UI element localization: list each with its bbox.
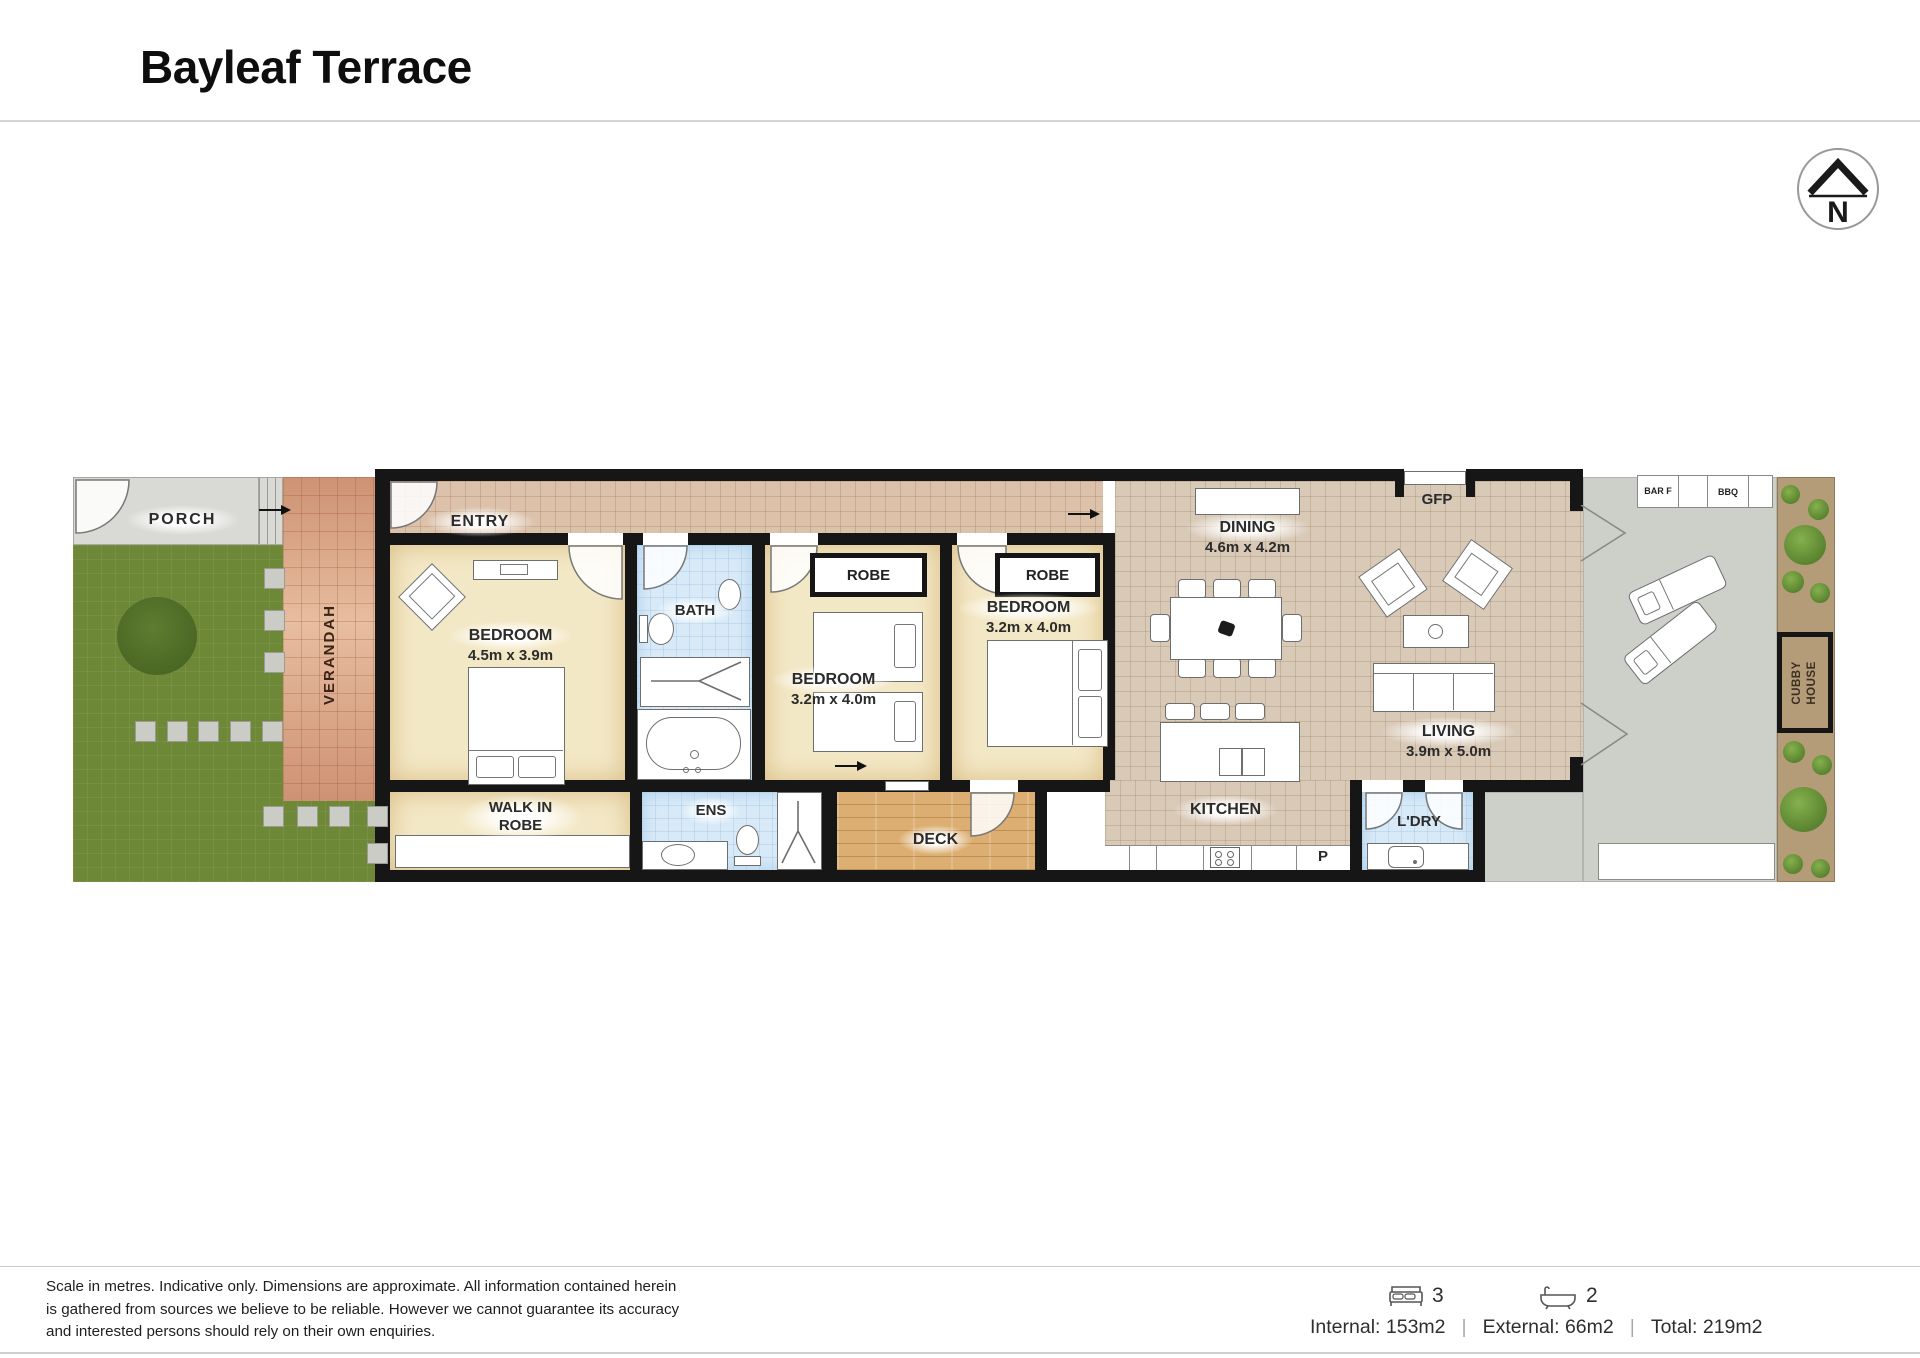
bedroom-2-dims: 3.2m x 4.0m bbox=[771, 691, 896, 709]
verandah-label-wrap: VERANDAH bbox=[305, 569, 353, 739]
bush-icon bbox=[1783, 854, 1803, 874]
bath-label: BATH bbox=[655, 597, 735, 625]
dining-dims: 4.6m x 4.2m bbox=[1185, 539, 1310, 557]
bar-stool-icon bbox=[1235, 703, 1265, 720]
bifold-door-icon bbox=[1577, 505, 1633, 767]
outdoor-bench: BAR F BBQ bbox=[1637, 475, 1773, 508]
shower-icon bbox=[640, 657, 750, 707]
stepping-stone bbox=[198, 721, 219, 742]
tree-icon bbox=[117, 597, 197, 675]
deck-label: DECK bbox=[898, 825, 973, 855]
toilet-icon bbox=[639, 615, 648, 643]
wall bbox=[375, 469, 1395, 481]
compass-north-label: N bbox=[1827, 196, 1849, 229]
buffet-icon bbox=[1195, 488, 1300, 515]
stepping-stone bbox=[263, 806, 284, 827]
robe-2: ROBE bbox=[810, 553, 927, 597]
bed-icon bbox=[1388, 1284, 1424, 1308]
dining-table-icon bbox=[1170, 597, 1282, 660]
stepping-stone bbox=[367, 843, 388, 864]
bush-icon bbox=[1784, 525, 1826, 565]
stepping-stone bbox=[264, 652, 285, 673]
wall bbox=[625, 533, 637, 780]
header-divider bbox=[0, 120, 1920, 122]
planter-box bbox=[1598, 843, 1775, 880]
stat-separator: | bbox=[1630, 1316, 1635, 1339]
sliding-door-icon bbox=[885, 781, 929, 791]
dining-chair-icon bbox=[1178, 579, 1206, 599]
wall bbox=[1035, 792, 1047, 870]
bedroom-3-dims: 3.2m x 4.0m bbox=[956, 619, 1101, 637]
cubby-house: CUBBY HOUSE bbox=[1777, 632, 1833, 733]
floorplan: ROBE ROBE bbox=[73, 469, 1837, 882]
laundry-label: L'DRY bbox=[1389, 813, 1449, 831]
bush-icon bbox=[1783, 741, 1805, 763]
entry-label: ENTRY bbox=[425, 507, 535, 537]
dining-chair-icon bbox=[1248, 658, 1276, 678]
walk-in-robe-label: WALK IN ROBE bbox=[458, 794, 583, 841]
floorplan-page: Bayleaf Terrace N bbox=[0, 0, 1920, 1358]
wall bbox=[1466, 469, 1475, 497]
stepping-stone bbox=[167, 721, 188, 742]
door-swing-icon bbox=[970, 792, 1015, 837]
bush-icon bbox=[1810, 583, 1830, 603]
bar-stool-icon bbox=[1165, 703, 1195, 720]
kitchen-walkway bbox=[1047, 780, 1105, 870]
wall bbox=[822, 792, 837, 870]
cubby-house-label: CUBBY HOUSE bbox=[1790, 660, 1820, 706]
area-stats: Internal: 153m2 | External: 66m2 | Total… bbox=[1310, 1316, 1762, 1339]
living-dims: 3.9m x 5.0m bbox=[1381, 743, 1516, 761]
wall bbox=[818, 533, 957, 545]
wall bbox=[752, 533, 765, 780]
ensuite-label: ENS bbox=[681, 797, 741, 825]
toilet-icon bbox=[734, 856, 761, 866]
wall bbox=[375, 870, 1485, 882]
internal-area: Internal: 153m2 bbox=[1310, 1316, 1446, 1339]
robe-3-label: ROBE bbox=[1026, 567, 1069, 584]
bush-icon bbox=[1808, 499, 1829, 520]
direction-arrow-icon bbox=[835, 765, 857, 767]
bush-icon bbox=[1781, 485, 1800, 504]
bush-icon bbox=[1782, 571, 1804, 593]
stepping-stone bbox=[264, 568, 285, 589]
stepping-stone bbox=[230, 721, 251, 742]
dresser-icon bbox=[473, 560, 558, 580]
stepping-stone bbox=[262, 721, 283, 742]
shower-icon bbox=[777, 792, 822, 870]
bathroom-count: 2 bbox=[1586, 1284, 1598, 1308]
door-swing-icon bbox=[75, 479, 130, 534]
stat-separator: | bbox=[1462, 1316, 1467, 1339]
dining-chair-icon bbox=[1248, 579, 1276, 599]
bar-fridge-label: BAR F bbox=[1644, 486, 1672, 496]
wall bbox=[1007, 533, 1110, 545]
centrepiece-icon bbox=[1217, 620, 1236, 637]
stepping-stone bbox=[264, 610, 285, 631]
island-bench-icon bbox=[1160, 722, 1300, 782]
door-swing-icon bbox=[568, 545, 623, 600]
double-bed-icon bbox=[987, 640, 1108, 747]
wall bbox=[1350, 780, 1362, 882]
wall bbox=[1018, 780, 1110, 792]
sofa-icon bbox=[1373, 663, 1495, 712]
bush-icon bbox=[1780, 787, 1827, 832]
stepping-stone bbox=[297, 806, 318, 827]
direction-arrow-icon bbox=[259, 509, 281, 511]
wall bbox=[1485, 780, 1583, 792]
porch-steps bbox=[258, 477, 283, 545]
door-swing-icon bbox=[643, 545, 688, 590]
dining-chair-icon bbox=[1213, 658, 1241, 678]
wall bbox=[1475, 469, 1583, 481]
fireplace-icon bbox=[1404, 471, 1466, 485]
page-title: Bayleaf Terrace bbox=[140, 40, 472, 94]
footer-divider bbox=[0, 1266, 1920, 1267]
coffee-table-icon bbox=[1403, 615, 1469, 648]
wall bbox=[940, 533, 952, 780]
dining-chair-icon bbox=[1178, 658, 1206, 678]
bush-icon bbox=[1812, 755, 1832, 775]
dining-chair-icon bbox=[1282, 614, 1302, 642]
bedroom-count: 3 bbox=[1432, 1284, 1444, 1308]
bathtub-icon bbox=[637, 709, 751, 780]
wall bbox=[630, 792, 642, 870]
bottom-divider bbox=[0, 1352, 1920, 1354]
wall bbox=[1463, 780, 1473, 792]
dining-chair-icon bbox=[1213, 579, 1241, 599]
pantry-label: P bbox=[1313, 848, 1333, 866]
north-compass-icon: N bbox=[1795, 146, 1881, 232]
laundry-tub-icon bbox=[1388, 846, 1424, 868]
wall bbox=[1403, 780, 1425, 792]
bush-icon bbox=[1811, 859, 1830, 878]
stepping-stone bbox=[367, 806, 388, 827]
patio-concrete-south bbox=[1485, 792, 1583, 882]
total-area: Total: 219m2 bbox=[1651, 1316, 1763, 1339]
gfp-label: GFP bbox=[1411, 491, 1463, 509]
bathtub-icon bbox=[1538, 1284, 1578, 1310]
dining-chair-icon bbox=[1150, 614, 1170, 642]
verandah-label: VERANDAH bbox=[321, 603, 338, 704]
wall bbox=[1395, 469, 1404, 497]
bbq-label: BBQ bbox=[1718, 487, 1738, 497]
bedroom-1-dims: 4.5m x 3.9m bbox=[448, 647, 573, 665]
stepping-stone bbox=[135, 721, 156, 742]
robe-2-label: ROBE bbox=[847, 567, 890, 584]
external-area: External: 66m2 bbox=[1483, 1316, 1614, 1339]
kitchen-label: KITCHEN bbox=[1173, 795, 1278, 825]
direction-arrow-icon bbox=[1068, 513, 1090, 515]
robe-3: ROBE bbox=[995, 553, 1100, 597]
bar-stool-icon bbox=[1200, 703, 1230, 720]
stepping-stone bbox=[329, 806, 350, 827]
double-bed-icon bbox=[468, 667, 565, 785]
basin-icon bbox=[661, 844, 695, 866]
wall bbox=[1473, 780, 1485, 882]
toilet-icon bbox=[736, 825, 759, 855]
disclaimer-text: Scale in metres. Indicative only. Dimens… bbox=[46, 1276, 686, 1344]
porch-label: PORCH bbox=[125, 505, 240, 535]
cooktop-icon bbox=[1210, 847, 1240, 868]
